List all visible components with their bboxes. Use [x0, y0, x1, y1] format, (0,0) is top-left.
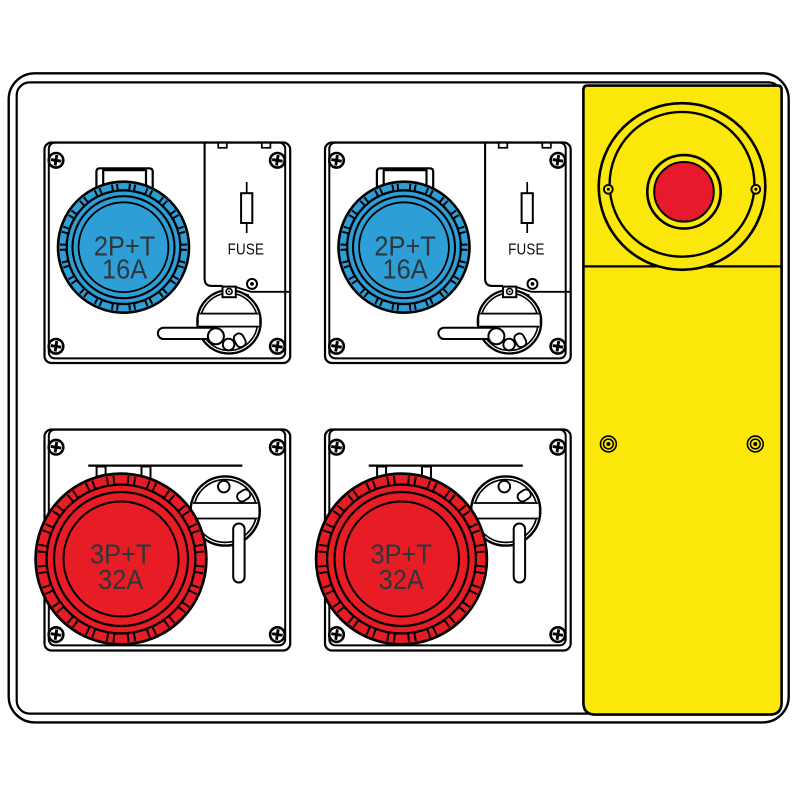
svg-text:32A: 32A — [379, 564, 424, 595]
svg-text:16A: 16A — [383, 254, 428, 285]
svg-text:FUSE: FUSE — [508, 242, 545, 259]
svg-text:32A: 32A — [98, 564, 143, 595]
svg-text:16A: 16A — [102, 254, 147, 285]
svg-text:FUSE: FUSE — [228, 242, 265, 259]
